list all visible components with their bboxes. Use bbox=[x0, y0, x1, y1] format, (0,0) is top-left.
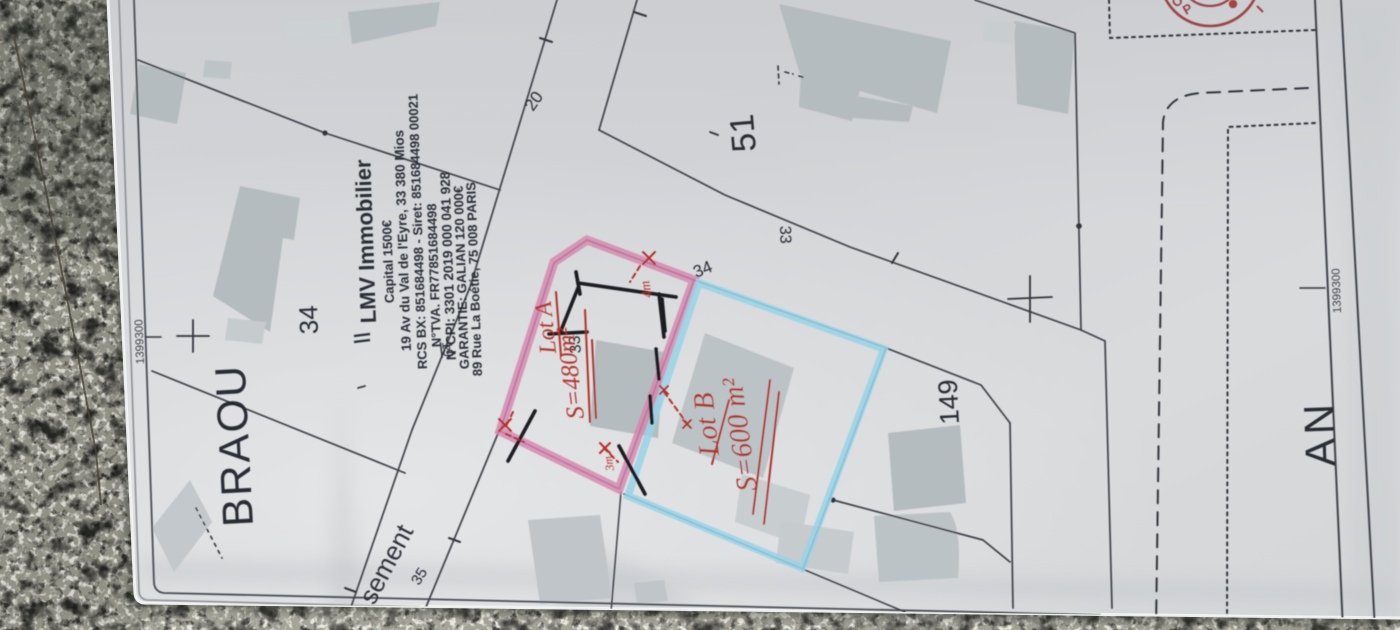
svg-text:1399300: 1399300 bbox=[133, 319, 147, 364]
svg-text:149: 149 bbox=[933, 379, 965, 426]
svg-text:AN: AN bbox=[1295, 399, 1344, 467]
svg-text:33: 33 bbox=[776, 226, 794, 244]
svg-text:1399300: 1399300 bbox=[1330, 268, 1344, 313]
svg-text:BRAOU: BRAOU bbox=[207, 363, 263, 528]
svg-text:51: 51 bbox=[723, 113, 764, 154]
svg-text:34: 34 bbox=[293, 305, 324, 335]
svg-text:4m: 4m bbox=[638, 279, 656, 298]
